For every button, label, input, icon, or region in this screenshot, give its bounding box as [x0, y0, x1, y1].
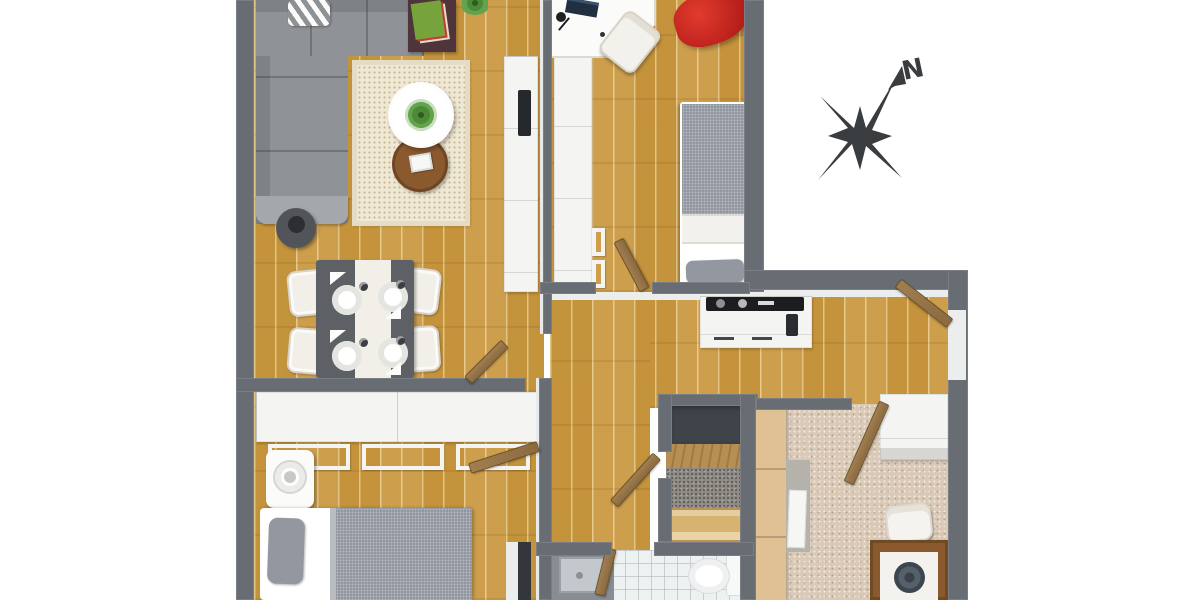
tv-flatscreen [518, 90, 531, 136]
sofa-top-arm [256, 0, 424, 56]
open-shelf-frame [592, 228, 605, 256]
wine-glass [359, 338, 368, 347]
shower-drain [576, 572, 583, 579]
wall-tv-panel [518, 542, 531, 600]
wall-face [506, 542, 518, 600]
storage-chest [668, 508, 744, 542]
wine-glass [359, 282, 368, 291]
stool-object [288, 216, 305, 233]
bathroom-wall-top-right [654, 542, 754, 556]
magazines [411, 0, 446, 40]
toilet-bowl [688, 558, 730, 594]
coffee-table-plant [404, 98, 438, 132]
drawer-handle [714, 337, 734, 340]
closet-wall-left-lower [658, 478, 672, 542]
tall-tan-cabinets [752, 400, 786, 600]
wine-glass [396, 280, 405, 289]
single-bed-fold [682, 214, 748, 244]
open-shelf-frame [362, 444, 444, 470]
drawer-handle [752, 337, 772, 340]
double-bed-pillow [267, 517, 305, 584]
office-wardrobe [880, 394, 948, 460]
plate [332, 285, 362, 315]
decorative-bowl [894, 562, 925, 593]
outer-wall-right-top [744, 0, 764, 292]
single-bed-duvet [682, 104, 748, 214]
closet-wall-left-upper [658, 394, 672, 452]
bathroom-wall-top-left [536, 542, 612, 556]
closet-wood-mat [666, 444, 742, 468]
wall-bedroom-kitchen [540, 282, 596, 294]
wardrobe-column [554, 54, 592, 292]
outer-wall-left [236, 0, 254, 600]
striped-pillow [288, 0, 330, 26]
cooking-pot [738, 299, 747, 308]
cooktop-grill [758, 301, 774, 305]
cooking-pot [716, 299, 725, 308]
plate [332, 341, 362, 371]
double-bed-duvet [330, 508, 472, 600]
wall-dining-bedroom [236, 378, 526, 392]
oven-window [786, 314, 798, 336]
office-chair [884, 502, 934, 545]
closet-wall-right [740, 394, 756, 600]
single-bed-pillow [686, 259, 745, 284]
compass-star [818, 78, 902, 180]
closet-carpet [666, 468, 742, 512]
mirror-panel [787, 490, 807, 549]
wine-glass [396, 336, 405, 345]
potted-plant [462, 0, 488, 15]
desk-mouse [600, 32, 605, 37]
table-lamp-top [284, 471, 296, 483]
wall-bedroom-kitchen [652, 282, 750, 294]
compass-rose: N [792, 48, 932, 208]
wall-hall-bedroom [536, 378, 552, 600]
closet-niche [666, 404, 742, 444]
hallway-floor [550, 292, 650, 554]
built-in-wardrobe [256, 392, 538, 442]
outer-wall-kitchen-top [744, 270, 968, 290]
office-wall-top [756, 398, 852, 410]
floor-plan-render: N [0, 0, 1200, 600]
